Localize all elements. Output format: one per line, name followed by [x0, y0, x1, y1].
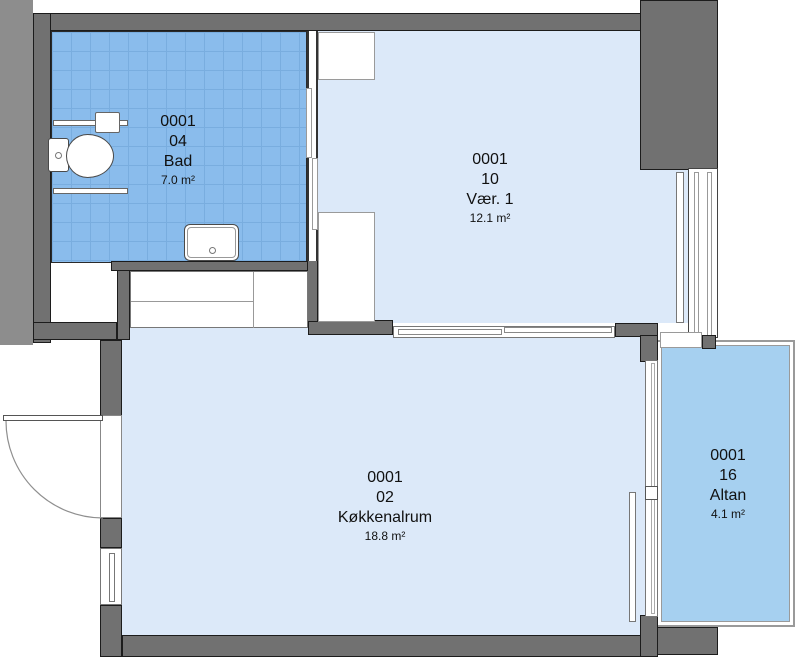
label-bathroom-unit: 0001	[160, 112, 196, 132]
wall-window-post	[702, 335, 716, 349]
label-kitchen-number: 02	[376, 488, 394, 508]
kitchen-left-window	[100, 548, 122, 605]
wall-shaft-right	[117, 261, 130, 340]
wall-below-balcony	[657, 627, 718, 655]
room1-closet-top	[318, 32, 375, 80]
label-kitchen: 0001 02 Køkkenalrum 18.8 m²	[305, 468, 465, 544]
sliding-panel-left	[398, 329, 502, 335]
room1-right-window	[688, 168, 718, 338]
wall-partition-stub	[307, 256, 318, 322]
label-room1: 0001 10 Vær. 1 12.1 m²	[420, 150, 560, 226]
wall-room1-bottom-left	[308, 320, 393, 335]
balcony-door-leaf	[629, 492, 636, 622]
label-room1-area: 12.1 m²	[470, 210, 511, 226]
label-bathroom-number: 04	[169, 132, 187, 152]
label-room1-name: Vær. 1	[466, 190, 513, 210]
label-kitchen-area: 18.8 m²	[365, 528, 406, 544]
label-bathroom: 0001 04 Bad 7.0 m²	[108, 112, 248, 188]
label-bathroom-name: Bad	[164, 152, 192, 172]
wall-balcony-top-post	[640, 335, 658, 362]
wall-left-below-window	[100, 605, 122, 657]
kitchen-counter	[130, 271, 308, 328]
wall-niche-bottom	[33, 322, 117, 340]
label-bathroom-area: 7.0 m²	[161, 172, 195, 188]
label-balcony-area: 4.1 m²	[711, 506, 745, 522]
label-balcony-number: 16	[719, 466, 737, 486]
sliding-panel-right	[504, 327, 612, 333]
grab-bar-lower	[53, 188, 128, 194]
label-balcony-name: Altan	[710, 486, 746, 506]
label-balcony: 0001 16 Altan 4.1 m²	[668, 446, 788, 522]
wall-left	[33, 13, 51, 343]
wall-left-lower-upper	[100, 340, 122, 418]
label-kitchen-unit: 0001	[367, 468, 403, 488]
sliding-door-panel-upper	[306, 88, 312, 158]
label-room1-number: 10	[481, 170, 499, 190]
wall-bottom	[122, 635, 658, 657]
balcony-top-rail-segment	[660, 332, 702, 348]
label-room1-unit: 0001	[472, 150, 508, 170]
wall-top	[33, 13, 645, 31]
room1-closet-bottom	[318, 212, 375, 322]
wall-bathroom-bottom	[111, 261, 318, 271]
exterior-mass-left	[0, 0, 33, 345]
label-balcony-unit: 0001	[710, 446, 746, 466]
balcony-door-jamb	[645, 486, 658, 500]
entry-door-swing-arc	[0, 408, 112, 526]
room1-open-door-leaf	[676, 172, 684, 323]
wall-top-right-block	[640, 0, 718, 170]
floor-plan: 0001 04 Bad 7.0 m² 0001 10 Vær. 1 12.1 m…	[0, 0, 800, 658]
label-kitchen-name: Køkkenalrum	[338, 508, 432, 528]
sink	[184, 224, 239, 261]
wall-bottom-right-step	[640, 615, 658, 657]
